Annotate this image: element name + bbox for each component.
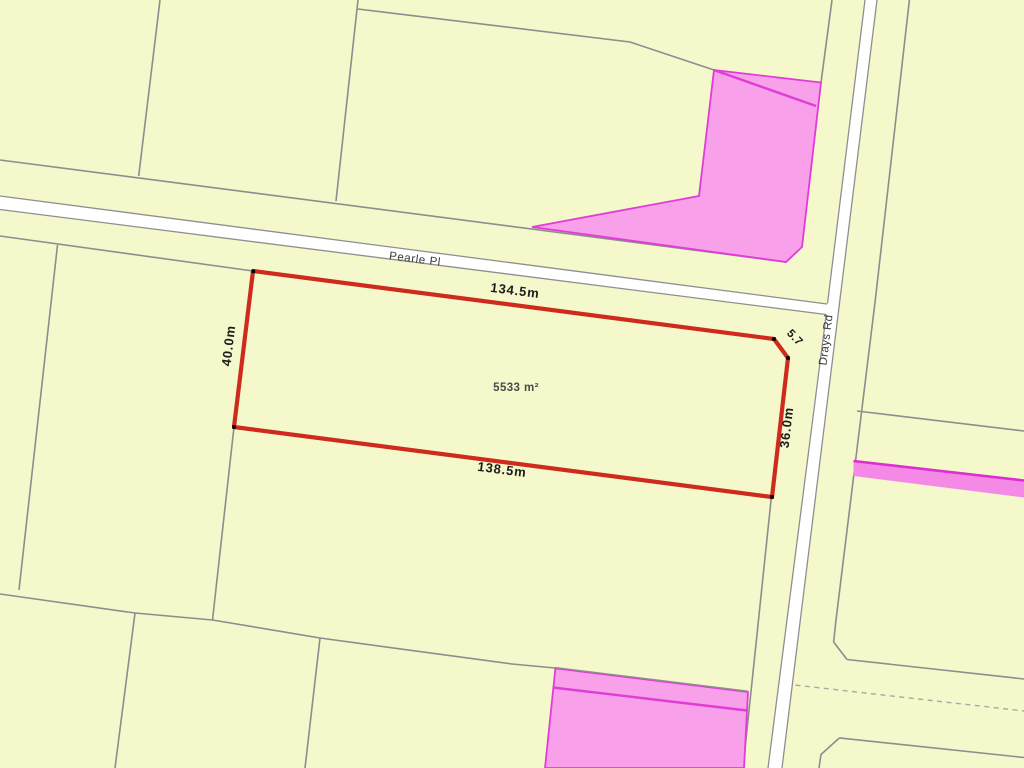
svg-text:5533 m²: 5533 m²	[493, 382, 539, 394]
